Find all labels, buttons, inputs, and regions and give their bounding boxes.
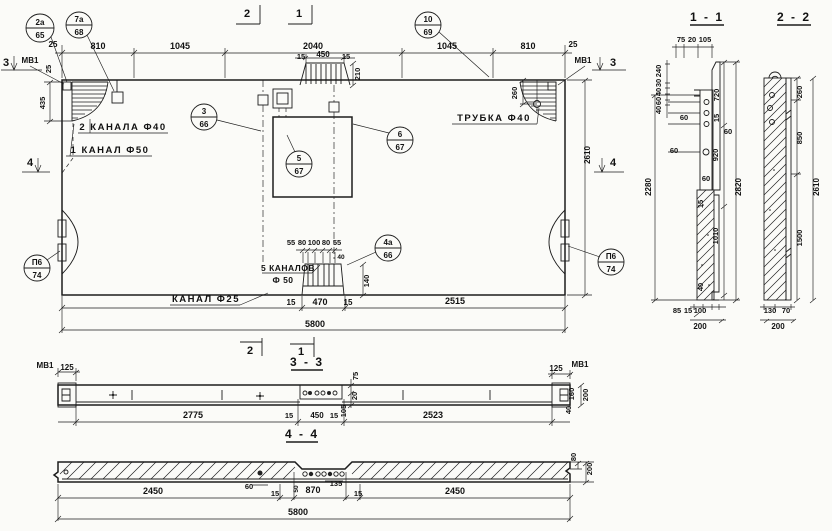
dim-5800: 5800 [305,319,325,329]
dim-810-right: 810 [520,41,535,51]
panel-drawing: 25 810 1045 2040 1045 810 25 15 450 15 2… [0,0,832,531]
dim-15b: 15 [330,411,338,420]
callout-bottom: 69 [424,28,433,37]
top-rib-detail: 15 450 15 210 [295,50,362,88]
label-f50: Ф 50 [272,275,293,285]
dim-100: 100 [694,306,707,315]
dim-435: 435 [38,97,47,110]
s44-hatch-right [352,462,568,479]
plan-labels: 2 КАНАЛА Ф40 1 КАНАЛ Ф50 ТРУБКА Ф40 КАНА… [66,108,539,305]
dim-240: 240 [654,65,663,78]
callout-top: 2а [36,18,45,27]
callout-6-67: 6 67 [353,124,413,153]
dim-55b: 55 [333,238,341,247]
section-3-3: 3 - 3 125 МВ1 125 МВ1 [37,355,590,426]
label-5-kanalov: 5 КАНАЛОВ [261,263,315,273]
s44-channels [64,470,344,476]
dim-80a: 80 [298,238,306,247]
dim-60b: 60 [670,146,678,155]
dim-30: 30 [654,79,663,87]
dim-55a: 55 [287,238,295,247]
dim-15-left-rib: 15 [297,52,305,61]
dim-125-left: 125 [60,363,74,372]
dim-5800: 5800 [288,507,308,517]
mv1-left: МВ1 [37,361,54,370]
s22-body-hatch [764,78,786,300]
dim-15a: 15 [285,411,293,420]
callout-top: 5 [297,154,302,163]
dim-1045-right: 1045 [437,41,457,51]
callout-bottom: 66 [200,120,209,129]
dim-260: 260 [510,87,519,100]
dim-15c: 15 [684,306,692,315]
callout-5-67: 5 67 [286,135,312,177]
callout-4a-66: 4а 66 [347,235,401,265]
callout-top: 7а [75,15,84,24]
kanal25-hole [258,471,263,476]
section-1-1: 1 - 1 75 20 105 240 30 40 60 40 [644,10,743,331]
dim-105: 105 [699,35,712,44]
dim-2820: 2820 [734,178,743,196]
dim-15a: 15 [712,114,721,122]
mv1-right: МВ1 [572,360,589,369]
mv1-label-left: МВ1 [22,56,39,65]
dim-70: 70 [782,306,790,315]
cut-1-top: 1 [296,8,302,20]
dim-2450-left: 2450 [143,486,163,496]
dim-2610: 2610 [812,178,821,196]
section-marker-4-right: 4 [610,157,617,169]
dim-210: 210 [353,68,362,81]
dim-60: 60 [245,482,253,491]
callout-bottom: 67 [396,143,405,152]
dim-2610: 2610 [583,146,592,164]
dim-450: 450 [316,50,330,59]
opening-outline [273,117,352,197]
dim-15a: 15 [287,298,296,307]
s22-lifting-loop [769,72,781,78]
dim-810-left: 810 [90,41,105,51]
callout-top: 3 [202,107,207,116]
dim-100: 100 [308,238,321,247]
label-kanal-f25: КАНАЛ Ф25 [172,294,240,305]
section-marker-3-left: 3 [3,57,9,69]
dim-85: 85 [673,306,681,315]
dim-15b: 15 [354,489,362,498]
s22-facing [786,78,791,300]
callout-p6-74-left: П6 74 [24,251,60,281]
callout-top: 4а [384,238,393,247]
section-3-3-title: 3 - 3 [290,355,324,369]
section-marker-4-left: 4 [27,157,34,169]
dim-160: 160 [567,388,576,401]
label-1-kanal-f50: 1 КАНАЛ Ф50 [71,145,150,156]
dim-60a: 60 [680,113,688,122]
dim-40c: 40 [696,283,705,291]
plan-view: 25 810 1045 2040 1045 810 25 15 450 15 2… [1,5,626,358]
dim-125-right: 125 [549,364,563,373]
s11-facing [712,195,719,300]
dim-2450-right: 2450 [445,486,465,496]
dim-15-right-rib: 15 [342,52,350,61]
dim-720: 720 [712,89,721,102]
callout-bottom: 67 [295,167,304,176]
dim-80: 80 [569,453,578,461]
dim-15a: 15 [271,489,279,498]
s33-end-left [58,383,76,407]
dim-2280: 2280 [644,178,653,196]
label-2-kanala-f40: 2 КАНАЛА Ф40 [79,122,166,133]
dim-135: 135 [330,479,343,488]
callout-bottom: 68 [75,28,84,37]
dim-25-left: 25 [49,40,58,49]
callout-top: П6 [606,252,617,261]
dim-25-offset: 25 [44,65,53,73]
dim-60: 60 [654,97,663,105]
s33-rebar-marks [109,390,490,400]
section-2-2-title: 2 - 2 [777,10,811,24]
dim-1500: 1500 [795,230,804,247]
callout-bottom: 74 [33,271,42,280]
dim-15b: 15 [344,298,353,307]
callout-bottom: 65 [36,31,45,40]
dim-80b: 80 [322,238,330,247]
dim-2775: 2775 [183,410,203,420]
section-marker-3-right: 3 [610,57,616,69]
dim-200: 200 [585,463,594,476]
dim-15b: 15 [696,200,705,208]
callout-bottom: 74 [607,265,616,274]
dim-870: 870 [305,485,320,495]
section-4-4-title: 4 - 4 [285,427,319,441]
callout-top: 6 [398,130,403,139]
dim-1010: 1010 [711,228,720,245]
s44-dims: 2450 60 15 870 135 15 2450 50 5800 80 20… [55,453,594,522]
section-4-4: 4 - 4 2450 60 15 870 135 15 2450 50 [54,427,594,522]
s11-dims: 75 20 105 240 30 40 60 40 2280 720 15 92… [644,35,743,331]
callout-p6-74-right: П6 74 [568,246,624,275]
dim-450: 450 [310,411,324,420]
dim-25-right: 25 [569,40,578,49]
dim-60d: 60 [702,174,710,183]
dim-2515: 2515 [445,296,465,306]
mv1-label-right: МВ1 [575,56,592,65]
s33-recess [300,385,342,399]
blueprint-sheet: 25 810 1045 2040 1045 810 25 15 450 15 2… [0,0,832,531]
dim-260: 260 [795,86,804,99]
callout-top: 10 [424,15,433,24]
dim-75: 75 [677,35,685,44]
dim-200: 200 [771,322,785,331]
dim-470: 470 [312,297,327,307]
dim-40b: 40 [654,106,663,114]
callout-bottom: 66 [384,251,393,260]
callout-top: П6 [32,258,43,267]
edge-detail-left [58,210,78,274]
dim-200: 200 [693,322,707,331]
callout-3-66: 3 66 [191,104,261,131]
label-trubka-f40: ТРУБКА Ф40 [457,113,531,124]
dim-50: 50 [293,485,300,493]
dim-130: 130 [764,306,777,315]
dim-75: 75 [351,372,360,380]
edge-detail-right [549,210,569,274]
dim-40: 40 [337,254,345,261]
dim-105: 105 [339,405,348,418]
dim-20: 20 [350,392,359,400]
dim-60c: 60 [724,127,732,136]
embedded-plates: 260 [112,78,541,262]
plan-bottom-dims: 15 470 15 2515 5800 [59,296,568,333]
cut-2-top: 2 [244,8,250,20]
section-1-1-title: 1 - 1 [690,10,724,24]
mv1-embed-left [63,82,71,90]
dim-850: 850 [795,132,804,145]
dim-1045-left: 1045 [170,41,190,51]
s22-dims: 260 850 1500 2610 130 70 200 [760,76,821,331]
dim-2523: 2523 [423,410,443,420]
callout-7a-68: 7а 68 [66,12,114,91]
s44-hatch-left [60,462,295,479]
dim-20: 20 [688,35,696,44]
dim-200: 200 [581,389,590,402]
dim-40: 40 [564,406,573,414]
dim-140: 140 [362,275,371,288]
cut-2-bottom: 2 [247,345,253,357]
section-2-2: 2 - 2 260 850 1500 2610 130 70 200 [760,10,821,331]
dim-920: 920 [711,149,720,162]
plan-top-dim-chain: 25 810 1045 2040 1045 810 25 [49,40,578,78]
